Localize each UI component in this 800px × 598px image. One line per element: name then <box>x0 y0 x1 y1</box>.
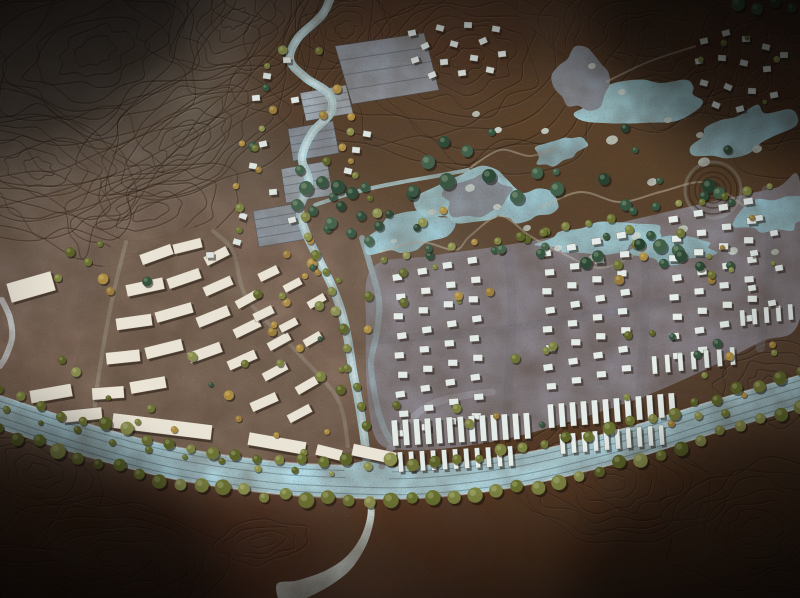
scale-model-photo <box>0 0 800 598</box>
model-scene-svg <box>0 0 800 598</box>
photo-vignette <box>0 0 800 598</box>
